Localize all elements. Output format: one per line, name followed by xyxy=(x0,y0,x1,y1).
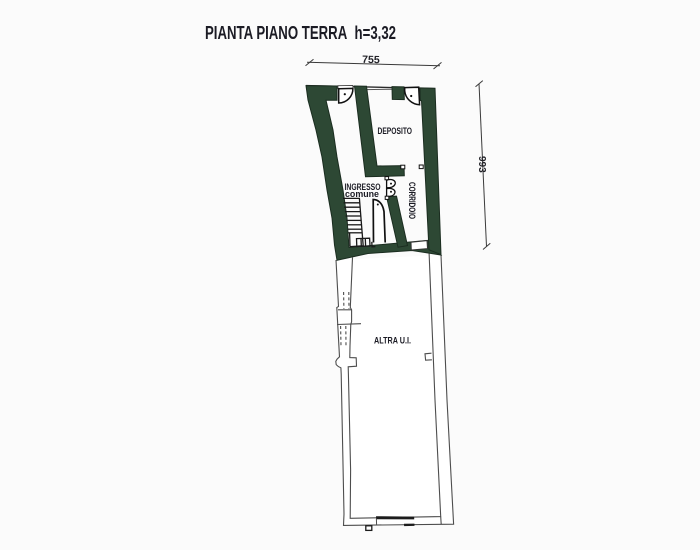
svg-text:ALTRA U.I.: ALTRA U.I. xyxy=(374,336,411,346)
svg-text:DEPOSITO: DEPOSITO xyxy=(378,126,413,136)
svg-text:comune: comune xyxy=(345,189,379,200)
svg-text:993: 993 xyxy=(476,156,487,173)
svg-text:CORRIDOIO: CORRIDOIO xyxy=(407,182,417,219)
svg-text:755: 755 xyxy=(362,54,380,66)
svg-text:PIANTA PIANO TERRA h=3,32: PIANTA PIANO TERRA h=3,32 xyxy=(205,22,396,43)
